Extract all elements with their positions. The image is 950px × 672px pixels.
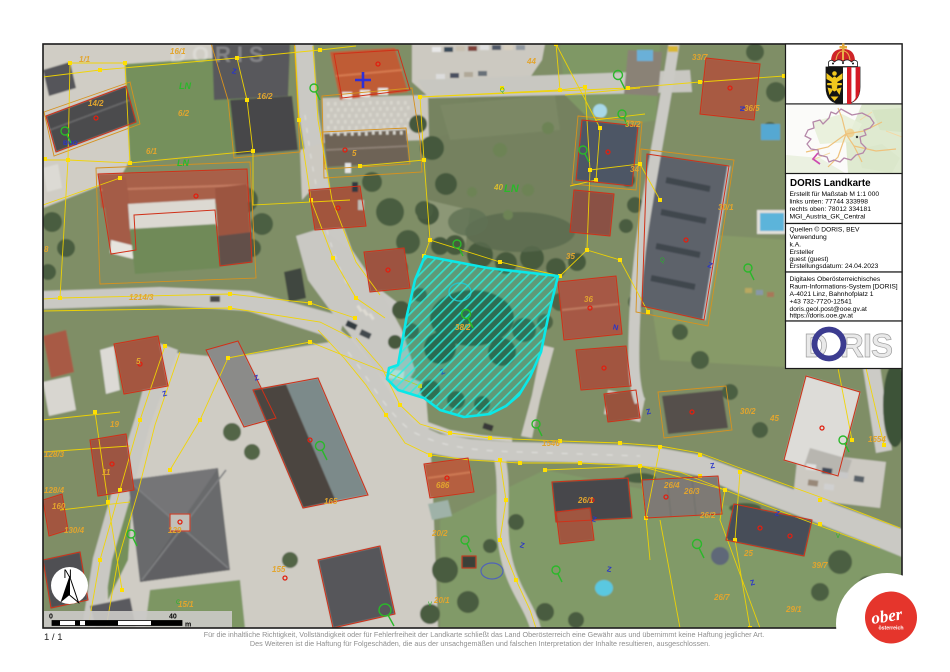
svg-text:links unten: 77744 333998: links unten: 77744 333998 [790, 199, 869, 206]
svg-text:160: 160 [52, 502, 66, 511]
svg-text:Erstellt für Maßstab M 1:1 000: Erstellt für Maßstab M 1:1 000 [790, 191, 880, 198]
svg-text:38/2: 38/2 [455, 323, 471, 332]
svg-text:https://doris.ooe.gv.at: https://doris.ooe.gv.at [790, 313, 854, 320]
svg-text:45: 45 [769, 414, 779, 423]
svg-text:44: 44 [526, 57, 536, 66]
svg-text:36: 36 [584, 295, 593, 304]
svg-text:1/1: 1/1 [79, 55, 91, 64]
svg-text:35: 35 [566, 252, 575, 261]
svg-text:40: 40 [493, 183, 503, 192]
svg-text:Ersteller: Ersteller [790, 249, 815, 256]
svg-text:165: 165 [324, 497, 338, 506]
svg-text:33/7: 33/7 [692, 53, 708, 62]
svg-text:16/1: 16/1 [170, 47, 186, 56]
svg-text:30/2: 30/2 [740, 407, 756, 416]
svg-text:MGI_Austria_GK_Central: MGI_Austria_GK_Central [790, 214, 866, 221]
svg-text:Für die inhaltliche Richtigkei: Für die inhaltliche Richtigkeit, Vollstä… [204, 630, 765, 639]
svg-text:130/4: 130/4 [64, 526, 85, 535]
svg-text:0: 0 [49, 614, 53, 621]
svg-text:25: 25 [743, 549, 753, 558]
svg-text:8: 8 [44, 245, 49, 254]
svg-text:Verwendung: Verwendung [790, 234, 827, 241]
svg-text:155: 155 [272, 565, 286, 574]
svg-text:686: 686 [436, 481, 450, 490]
svg-text:128/4: 128/4 [44, 486, 65, 495]
svg-text:LN: LN [504, 183, 520, 195]
svg-text:1554: 1554 [868, 435, 886, 444]
svg-text:1214/3: 1214/3 [129, 293, 154, 302]
svg-text:6/2: 6/2 [178, 109, 190, 118]
svg-text:5: 5 [136, 357, 141, 366]
svg-text:29/1: 29/1 [785, 605, 802, 614]
svg-text:österreich: österreich [878, 626, 903, 632]
svg-text:V: V [428, 602, 432, 608]
svg-text:26/7: 26/7 [713, 593, 730, 602]
svg-text:k.A.: k.A. [790, 242, 802, 249]
svg-text:guest (guest): guest (guest) [790, 256, 829, 263]
svg-text:LN: LN [179, 81, 191, 91]
svg-text:26/3: 26/3 [683, 487, 700, 496]
svg-text:V: V [836, 534, 840, 540]
svg-text:26/4: 26/4 [663, 481, 680, 490]
svg-text:36/5: 36/5 [744, 104, 760, 113]
svg-text:19: 19 [110, 420, 119, 429]
svg-text:1 / 1: 1 / 1 [44, 632, 63, 643]
svg-text:39/7: 39/7 [812, 561, 828, 570]
svg-text:20/1: 20/1 [433, 596, 450, 605]
svg-text:Erstellungsdatum: 24.04.2023: Erstellungsdatum: 24.04.2023 [790, 263, 879, 270]
svg-text:128/3: 128/3 [44, 450, 65, 459]
svg-text:DORIS Landkarte: DORIS Landkarte [790, 178, 871, 189]
svg-text:129: 129 [168, 526, 182, 535]
svg-text:16/2: 16/2 [257, 92, 273, 101]
svg-text:1546: 1546 [542, 439, 560, 448]
svg-text:15/1: 15/1 [178, 600, 194, 609]
svg-text:34: 34 [630, 165, 639, 174]
svg-text:Q: Q [500, 88, 505, 94]
svg-text:26/2: 26/2 [699, 511, 716, 520]
svg-text:14/2: 14/2 [88, 99, 104, 108]
svg-text:A-4021 Linz, Bahnhofplatz 1: A-4021 Linz, Bahnhofplatz 1 [790, 291, 874, 298]
svg-text:LN: LN [177, 158, 189, 168]
svg-text:30/1: 30/1 [718, 203, 734, 212]
svg-text:5: 5 [352, 149, 357, 158]
svg-text:Q: Q [660, 258, 665, 264]
svg-text:6/1: 6/1 [146, 147, 158, 156]
svg-text:Quellen © DORIS, BEV: Quellen © DORIS, BEV [790, 226, 861, 234]
svg-text:rechts oben: 78012 334181: rechts oben: 78012 334181 [790, 206, 872, 213]
svg-text:Digitales Oberösterreichisches: Digitales Oberösterreichisches [790, 276, 881, 283]
svg-text:26/1: 26/1 [577, 496, 594, 505]
svg-text:20/2: 20/2 [431, 529, 448, 538]
svg-text:Des Weiteren ist die Haftung f: Des Weiteren ist die Haftung für Folgesc… [250, 639, 710, 648]
svg-text:33/2: 33/2 [625, 120, 641, 129]
svg-text:11: 11 [102, 468, 111, 477]
svg-text:Raum-Informations-System [DORI: Raum-Informations-System [DORIS] [790, 284, 898, 291]
svg-text:+43 732-7720-12541: +43 732-7720-12541 [790, 299, 853, 306]
svg-text:40: 40 [169, 614, 177, 621]
svg-text:RIS: RIS [840, 327, 892, 364]
